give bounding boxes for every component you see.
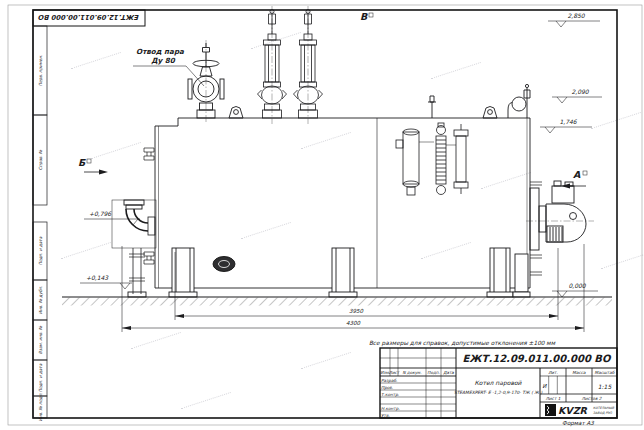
safety-valve-1 (258, 10, 287, 119)
manhole (213, 257, 235, 272)
view-letter: В (360, 11, 368, 22)
elevation-text: 2,090 (571, 88, 589, 95)
doc-number-top: ЕЖТ.12.09.011.00.000 ВО (33, 10, 145, 26)
reference-note: Все размеры для справок, допустимые откл… (369, 340, 556, 347)
company-name: КОТЕЛЬНЫЙ (593, 406, 615, 410)
stamp-label: Инв. № подл. (38, 392, 43, 422)
ground (62, 297, 612, 306)
elevation-text: +0,796 (89, 210, 112, 217)
gauge-pole (524, 88, 530, 118)
elevation-2090: 2,090 (552, 88, 602, 103)
drawing-sheet: Перв. примен. Справ. № Подп. и дата Инв.… (0, 0, 644, 430)
view-letter: А (573, 169, 581, 180)
side-stamp-labels: Перв. примен. Справ. № Подп. и дата Инв.… (38, 54, 44, 421)
elevation-0000: 0,000 (552, 282, 598, 297)
product-name: Котел паровой (474, 379, 522, 387)
right-wall-stubs (530, 182, 542, 275)
dimension-text: 3950 (349, 308, 364, 314)
row-label: Утв. (381, 413, 390, 418)
format-label: Формат А3 (562, 420, 594, 427)
dimension-text: 4300 (346, 320, 361, 326)
deck-fittings (229, 84, 530, 118)
thermowell-stub (428, 96, 436, 118)
row-label: Т.контр. (381, 392, 400, 397)
stamp-label: Инв. № дубл. (38, 285, 43, 314)
view-arrow-icon (99, 169, 108, 174)
supports (169, 248, 530, 297)
logo-text: KVZR (558, 405, 588, 416)
col-header: N докум. (403, 370, 422, 375)
row-label: Пров. (381, 385, 394, 390)
safety-valve-2 (294, 10, 323, 119)
elevation-text: +0,143 (86, 274, 109, 281)
burner-grill (547, 226, 563, 242)
lit-header: Лит. (548, 370, 558, 375)
stamp-label: Подп. и дата (38, 363, 43, 392)
elevation-text: 2,850 (567, 12, 585, 19)
steam-outlet-callout: Отвод пара Ду 80 (133, 47, 204, 86)
hook-ring (512, 97, 526, 111)
row-label: Н.контр. (381, 406, 400, 411)
col-header: Дата (443, 370, 454, 375)
sheet-number: Лист 1 (546, 396, 561, 401)
mass-header: Масса (572, 370, 586, 375)
burner (530, 181, 586, 250)
lifting-lug (483, 107, 497, 119)
left-wall-stubs (144, 148, 154, 264)
water-gauge-group (396, 123, 468, 195)
title-block: ЕЖТ.12.09.011.00.000 ВО Изм. Лист N доку… (380, 348, 617, 418)
centerlines (206, 6, 594, 221)
view-arrow-icon (561, 183, 570, 188)
title-doc-number: ЕЖТ.12.09.011.00.000 ВО (463, 353, 612, 364)
stamp-label: Справ. № (38, 149, 43, 170)
view-label-a: А (561, 169, 587, 189)
row-label: Разраб. (381, 378, 398, 383)
view-label-b: Б (78, 157, 108, 175)
elbow-assembly (112, 200, 156, 297)
callout-text: Ду 80 (151, 56, 176, 65)
col-header: Подп. (427, 370, 439, 375)
view-letter: Б (78, 157, 86, 168)
callout-text: Отвод пара (136, 47, 185, 56)
elevation-2850: 2,850 (548, 12, 600, 27)
stamp-label: Взам. инв. № (38, 325, 43, 354)
scale-value: 1:15 (598, 383, 613, 390)
stamp-label: Перв. примен. (38, 54, 43, 86)
stamp-label: Подп. и дата (38, 236, 43, 265)
elevation-1746: 1,746 (540, 118, 592, 133)
product-designation: STEAMEXPERT- Е -1,2-0,9-170- ТЖ ( Ж ) (454, 390, 543, 395)
lit-value: И (542, 383, 547, 389)
scale-header: Масштаб (595, 370, 615, 375)
col-header: Лист (389, 370, 400, 375)
company-logo: KVZR КОТЕЛЬНЫЙ ЗАВОД РЭП (545, 404, 615, 416)
elevation-0143: +0,143 (80, 274, 132, 289)
doc-number-top-text: ЕЖТ.12.09.011.00.000 ВО (37, 13, 139, 21)
sheet-count: Листов 2 (581, 396, 601, 401)
lifting-lug (229, 107, 243, 119)
elevation-text: 1,746 (559, 118, 577, 125)
view-label-v: В (360, 11, 373, 22)
company-name: ЗАВОД РЭП (593, 411, 613, 415)
